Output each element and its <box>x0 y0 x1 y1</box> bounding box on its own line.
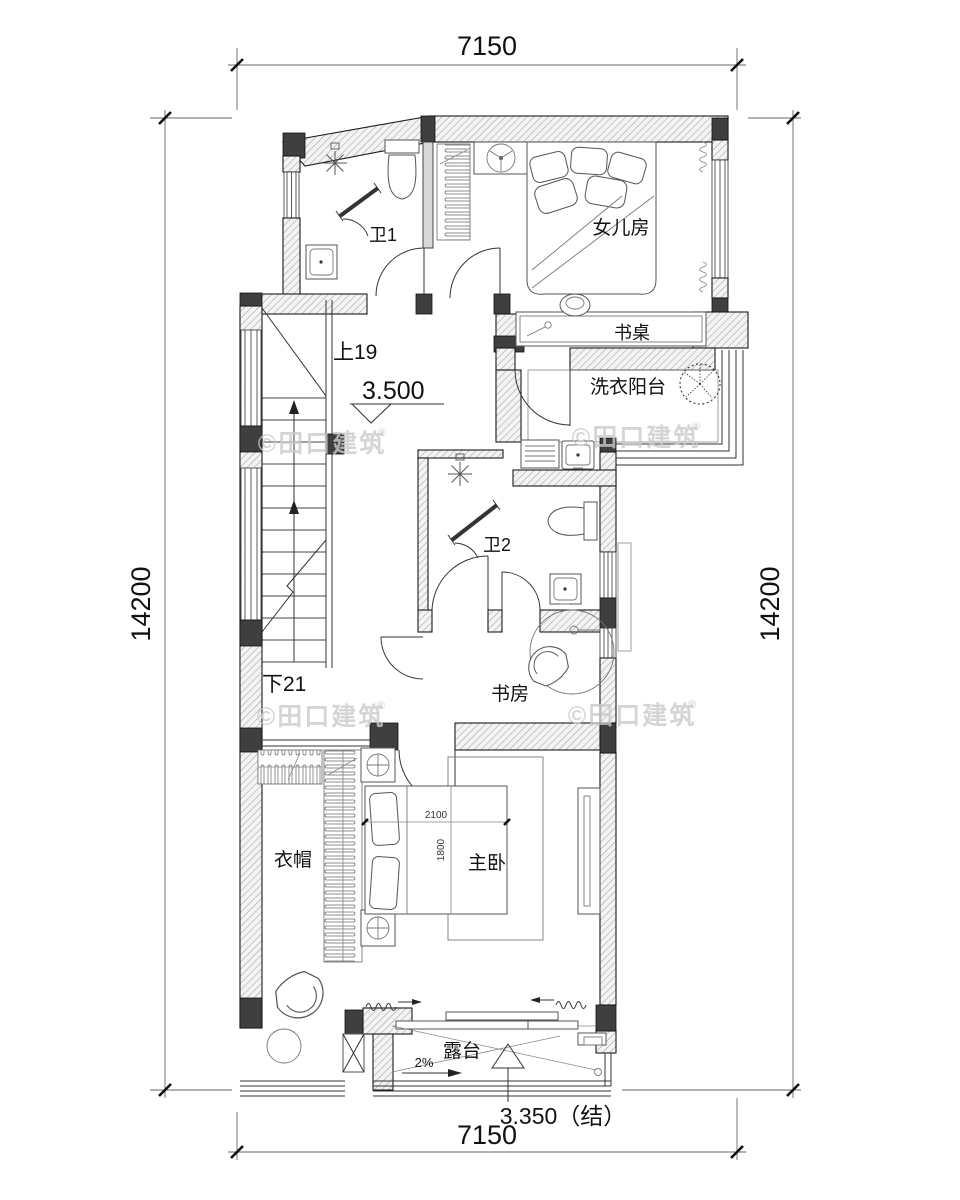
level-terrace-label: 3.350（结） <box>500 1103 627 1129</box>
column-door-bath1 <box>416 294 432 314</box>
wardrobe-cloak-side <box>324 750 362 962</box>
wardrobe-cloak-top <box>258 750 322 784</box>
ceiling-fan-icon <box>474 142 528 174</box>
shower-light-icon <box>448 454 472 486</box>
watermarks: ©田口建筑 ® ©田口建筑 ® ©田口建筑 ® ©田口建筑 ® <box>257 421 700 731</box>
dim-right-label: 14200 <box>755 566 785 641</box>
partition-bath1-daughter <box>423 142 433 248</box>
cloak-room: 衣帽 <box>258 750 362 962</box>
toilet-bath1-bowl <box>388 155 416 199</box>
dimension-left: 14200 <box>126 110 232 1098</box>
svg-text:©田口建筑: ©田口建筑 <box>258 429 386 458</box>
column-top-mid <box>421 116 435 142</box>
bathroom1: 卫1 <box>306 140 424 296</box>
column-terrace-west <box>345 1010 363 1034</box>
svg-text:©田口建筑: ©田口建筑 <box>257 702 385 731</box>
dim-top-label: 7150 <box>457 31 517 61</box>
column-daughter-se <box>712 298 728 312</box>
svg-text:©田口建筑: ©田口建筑 <box>568 701 696 730</box>
desk: 书桌 <box>516 294 706 346</box>
terrace-step <box>578 1033 606 1045</box>
sliding-door <box>393 1012 596 1029</box>
svg-text:®: ® <box>688 699 696 711</box>
column-top-left <box>283 133 305 158</box>
desk-label: 书桌 <box>614 323 650 343</box>
column-door-daughter <box>494 294 510 314</box>
stair-down-label: 下21 <box>262 673 306 696</box>
screen-coil-window-top <box>700 142 707 172</box>
level-marker-floor: 3.500 <box>350 377 444 423</box>
sink-bath2 <box>550 574 581 604</box>
floor-plan-drawing: 7150 7150 14200 14200 <box>0 0 960 1200</box>
sink-bath1 <box>306 245 337 279</box>
watermark: ©田口建筑 ® <box>258 427 386 458</box>
stair-break-upper <box>262 308 326 396</box>
screen-coil-right <box>530 997 586 1009</box>
room-label-study: 书房 <box>491 683 529 705</box>
stair-up-label: 上19 <box>333 341 377 364</box>
pier-terrace <box>373 1034 393 1090</box>
door-study <box>381 637 423 679</box>
column-west-3 <box>240 728 262 752</box>
nightstand-top <box>361 748 395 782</box>
bed-width-label: 1800 <box>436 838 447 861</box>
washing-machine <box>521 440 559 468</box>
drain-icon <box>595 1069 602 1076</box>
svg-text:©田口建筑: ©田口建筑 <box>572 423 700 452</box>
pillow <box>369 856 400 910</box>
floor-plan-sheet: 7150 7150 14200 14200 <box>0 0 960 1200</box>
wall-bath2-west <box>418 458 428 612</box>
bay-window-frame <box>618 543 631 651</box>
nightstand-bottom <box>361 910 395 946</box>
svg-text:®: ® <box>377 700 385 712</box>
wall-bath2-south <box>540 610 610 632</box>
toilet-bath2 <box>548 502 597 540</box>
column-terrace-east <box>596 1005 616 1031</box>
door-bath2-west <box>432 556 488 610</box>
shaft-box <box>343 1034 364 1072</box>
room-label-master: 主卧 <box>468 852 506 874</box>
pillow <box>369 792 400 846</box>
column-west-2 <box>240 620 262 646</box>
pillow <box>570 147 608 175</box>
wall-balcony-north <box>570 348 715 370</box>
room-label-daughter: 女儿房 <box>592 217 649 239</box>
door-bath2-east <box>502 572 540 610</box>
wall-hall-north <box>255 294 367 314</box>
level-floor-label: 3.500 <box>362 377 425 405</box>
dimension-bottom: 7150 <box>228 1098 746 1160</box>
slope-label: 2% <box>415 1055 434 1070</box>
room-label-bath2: 卫2 <box>483 535 511 555</box>
wall-west <box>240 306 262 1028</box>
wall-balcony-west <box>496 370 521 442</box>
wardrobe-daughter <box>437 144 470 240</box>
watermark: ©田口建筑 ® <box>257 700 385 731</box>
door-daughter <box>450 248 500 298</box>
watermark: ©田口建筑 ® <box>568 699 696 730</box>
column-west-4 <box>240 998 262 1028</box>
room-label-terrace: 露台 <box>443 1040 481 1062</box>
dim-left-label: 14200 <box>126 566 156 641</box>
chair-lounge <box>268 964 333 1027</box>
screen-coil-window-bottom <box>700 262 707 292</box>
wall-east <box>600 486 631 1005</box>
wall-laundry-south <box>513 470 616 486</box>
svg-text:®: ® <box>692 421 700 433</box>
room-label-laundry: 洗衣阳台 <box>590 376 666 398</box>
watermark: ©田口建筑 ® <box>572 421 700 452</box>
room-label-bath1: 卫1 <box>369 225 397 245</box>
bed-length-label: 2100 <box>425 810 448 821</box>
laundry-balcony: 洗衣阳台 <box>496 350 743 486</box>
svg-text:®: ® <box>378 427 386 439</box>
door-balcony <box>515 370 570 426</box>
table-lounge <box>267 1029 301 1063</box>
door-bath1 <box>376 248 424 296</box>
toilet-bath1-tank <box>385 140 419 153</box>
daughter-room: 女儿房 书桌 <box>437 142 706 346</box>
room-label-cloak: 衣帽 <box>274 849 312 871</box>
tv-cabinet <box>578 788 600 914</box>
wall-top <box>430 116 728 142</box>
dimension-top: 7150 <box>228 31 746 110</box>
column-top-right <box>712 118 728 140</box>
